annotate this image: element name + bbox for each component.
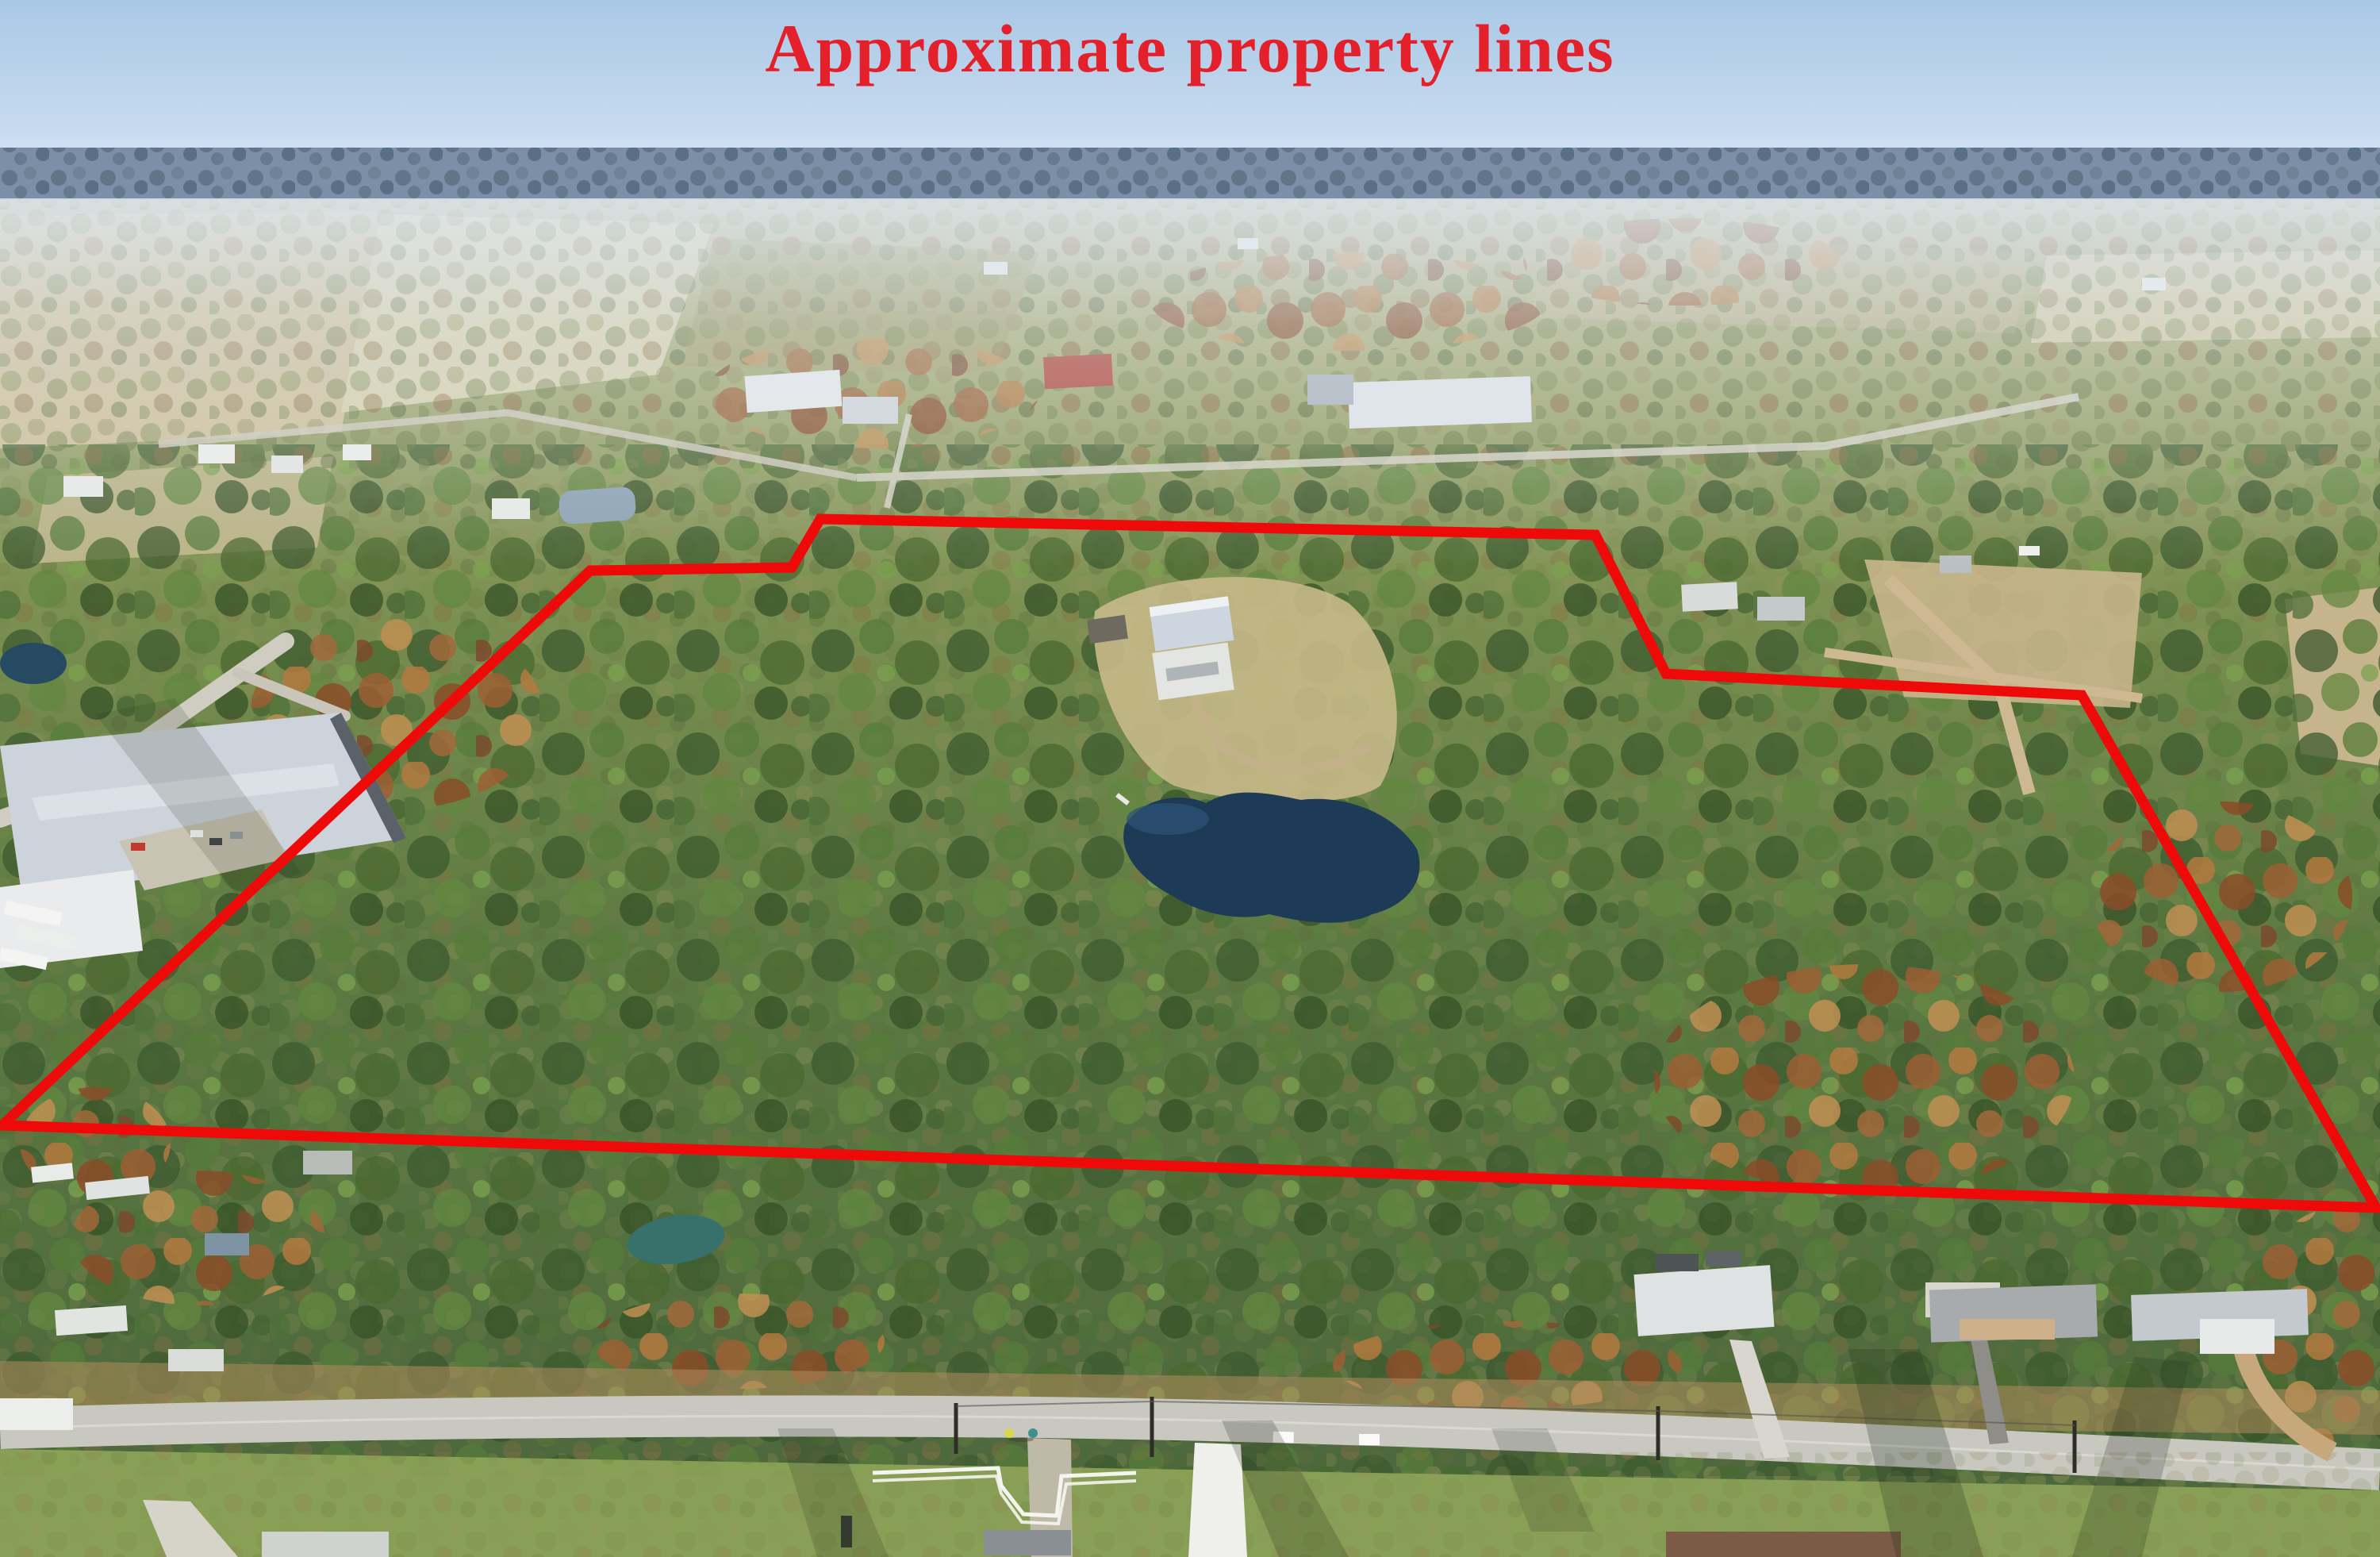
page-title: Approximate property lines [765, 10, 1614, 86]
haze [0, 198, 2380, 571]
house-roof [0, 1398, 73, 1430]
aerial-photo-canvas: Approximate property lines [0, 0, 2380, 1557]
cyclist [1028, 1428, 1038, 1438]
house-roof [262, 1532, 389, 1557]
aerial-photo: Approximate property lines [0, 0, 2380, 1557]
house-roof [1633, 1265, 1774, 1336]
shed-roof [1656, 1254, 1699, 1271]
house-roof [205, 1233, 249, 1255]
house-roof [168, 1349, 224, 1371]
house-roof [303, 1151, 352, 1174]
small-pond-left [0, 643, 67, 684]
road-marking [1359, 1434, 1380, 1445]
house-roof [55, 1305, 128, 1336]
house-roof [984, 1530, 1071, 1555]
shed-roof [1706, 1251, 1741, 1267]
house-roof [1666, 1532, 1901, 1557]
cyclist [1004, 1428, 1014, 1438]
carport [2200, 1319, 2274, 1354]
